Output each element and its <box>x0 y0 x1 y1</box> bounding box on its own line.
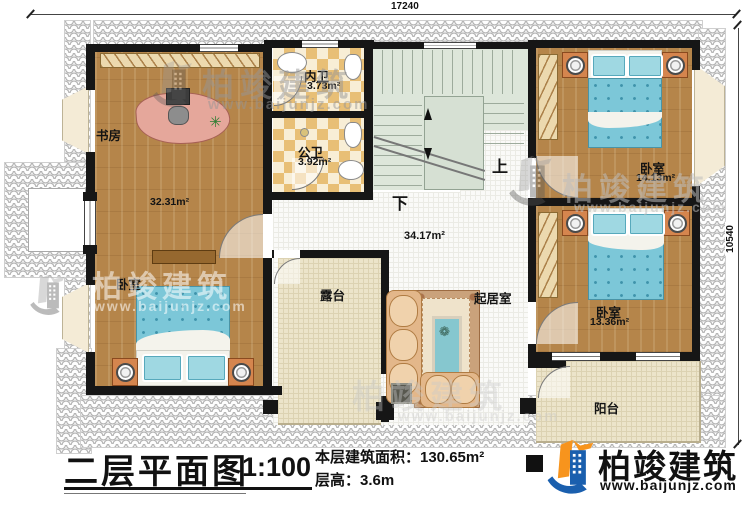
lamp <box>566 214 585 233</box>
right-dimension-line <box>738 28 739 445</box>
wall <box>528 40 700 48</box>
wall <box>692 40 700 70</box>
watermark-logo-icon <box>26 272 68 318</box>
watermark-brand-site: www.baijunjz.com <box>574 199 727 215</box>
pillow <box>628 212 665 236</box>
area-label-bedroom-mid-right: 13.36m² <box>590 316 629 328</box>
wardrobe <box>538 54 558 140</box>
area-label-suite: 32.31m² <box>150 196 189 208</box>
watermark-brand-site: www.baijunjz.com <box>398 408 559 425</box>
room-label-study: 书房 <box>96 125 121 144</box>
lower-roof-skylight <box>28 188 86 252</box>
plan-floor-height-text: 层高：3.6m <box>315 469 394 490</box>
toilet <box>344 122 362 148</box>
sofa-cushion <box>389 295 418 327</box>
door-opening <box>528 302 536 344</box>
window <box>552 352 600 361</box>
pillow <box>186 354 227 382</box>
lamp <box>116 363 135 382</box>
window <box>424 42 476 49</box>
right-dimension-value: 10540 <box>725 222 736 256</box>
plan-area-text: 本层建筑面积：130.65m² <box>315 446 484 467</box>
wall <box>364 42 373 200</box>
dimension-tick <box>732 9 741 19</box>
lamp <box>232 363 251 382</box>
watermark-logo-icon <box>148 58 196 110</box>
stairs-right-flight <box>484 100 524 144</box>
stairs-direction-arrow-down <box>424 148 432 160</box>
pillow <box>591 54 627 78</box>
watermark-brand-site: www.baijunjz.com <box>94 298 247 314</box>
wall-column <box>263 400 278 414</box>
top-dimension-line <box>30 14 737 15</box>
title-underline-thin <box>64 493 246 494</box>
table-decor: ❁ <box>439 324 450 340</box>
lamp <box>668 214 687 233</box>
window <box>200 44 238 52</box>
area-label-public-bath: 3.92m² <box>298 156 331 168</box>
bed-mid-right <box>588 208 664 300</box>
bed-top-right <box>588 50 662 148</box>
top-dimension-value: 17240 <box>388 1 422 12</box>
shower-head <box>300 128 309 137</box>
wardrobe <box>538 212 558 298</box>
pillow <box>591 212 628 236</box>
wall <box>266 192 364 200</box>
plan-title: 二层平面图 <box>64 444 249 493</box>
watermark-brand-site: www.baijunjz.com <box>208 96 369 113</box>
wall <box>86 44 95 90</box>
title-underline-thick <box>64 487 312 490</box>
wall <box>83 245 97 254</box>
plan-scale: 1:100 <box>242 452 311 483</box>
window <box>84 201 96 245</box>
wall <box>86 44 268 52</box>
window <box>636 352 680 361</box>
room-label-terrace: 露台 <box>320 285 345 304</box>
area-label-hall: 34.17m² <box>404 230 445 242</box>
floor-plan: 17240 10540 <box>0 0 750 505</box>
black-square-marker <box>526 455 543 472</box>
wall <box>83 192 97 201</box>
sofa-cushion <box>389 329 418 361</box>
sink <box>338 160 364 180</box>
room-label-balcony: 阳台 <box>594 398 619 417</box>
brand-website: www.baijunjz.com <box>600 477 737 493</box>
room-label-living: 起居室 <box>474 288 512 307</box>
pillow <box>627 54 663 78</box>
stairs-direction-arrow-up <box>424 108 432 120</box>
pillow <box>142 354 183 382</box>
wall <box>86 386 282 395</box>
plant: ✳ <box>209 113 222 131</box>
brand-logo-icon <box>542 436 598 498</box>
stairs-top-flight <box>382 50 522 94</box>
window <box>302 40 338 48</box>
lamp <box>666 56 685 75</box>
watermark-logo-icon <box>504 153 556 209</box>
stairs-down-label: 下 <box>392 190 408 214</box>
door-opening <box>263 214 272 258</box>
lamp <box>566 56 585 75</box>
door-opening <box>274 250 300 258</box>
